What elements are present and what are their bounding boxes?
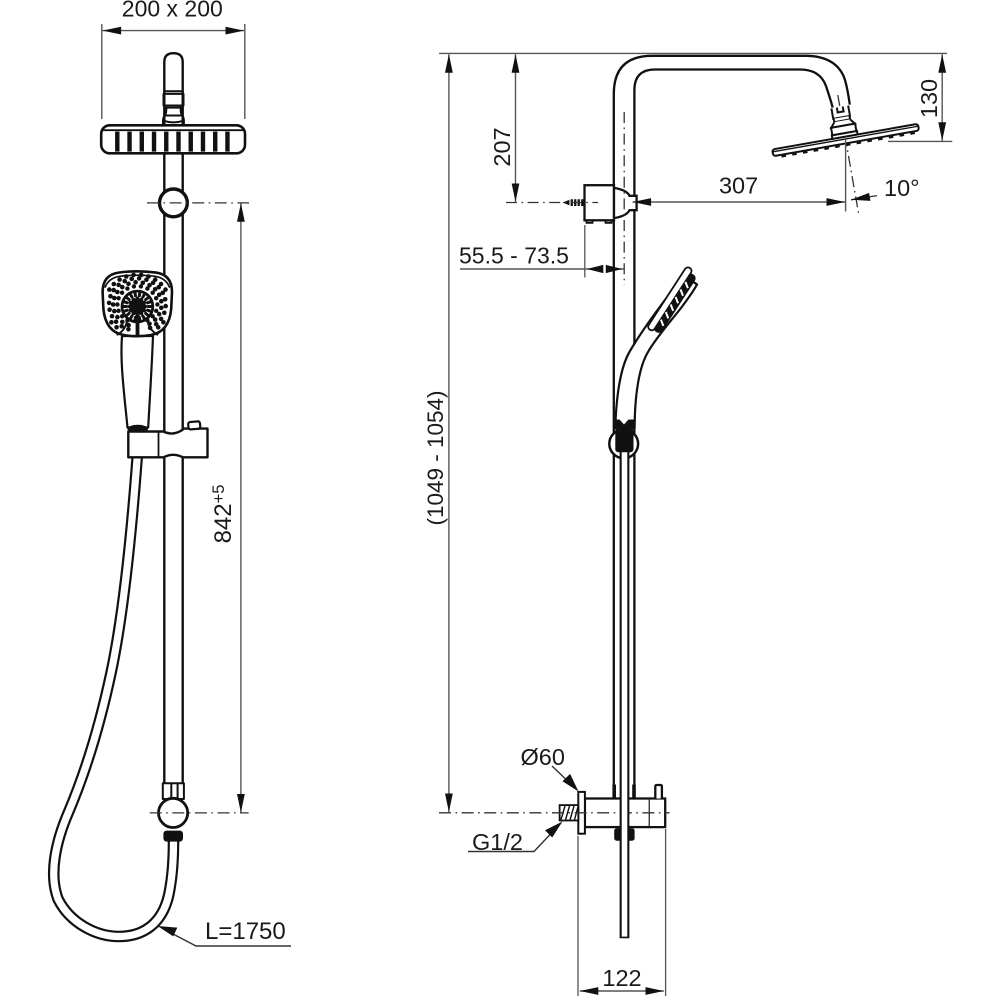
svg-text:122: 122 — [602, 965, 641, 991]
svg-text:G1/2: G1/2 — [472, 829, 523, 855]
svg-text:307: 307 — [719, 173, 758, 199]
svg-text:(1049 - 1054): (1049 - 1054) — [423, 390, 448, 525]
svg-text:55.5 - 73.5: 55.5 - 73.5 — [459, 243, 569, 269]
svg-text:200 x 200: 200 x 200 — [122, 0, 223, 22]
svg-text:Ø60: Ø60 — [521, 744, 565, 770]
svg-text:207: 207 — [489, 127, 515, 166]
svg-text:130: 130 — [916, 79, 942, 118]
svg-text:L=1750: L=1750 — [205, 918, 286, 945]
svg-text:10°: 10° — [884, 175, 920, 201]
